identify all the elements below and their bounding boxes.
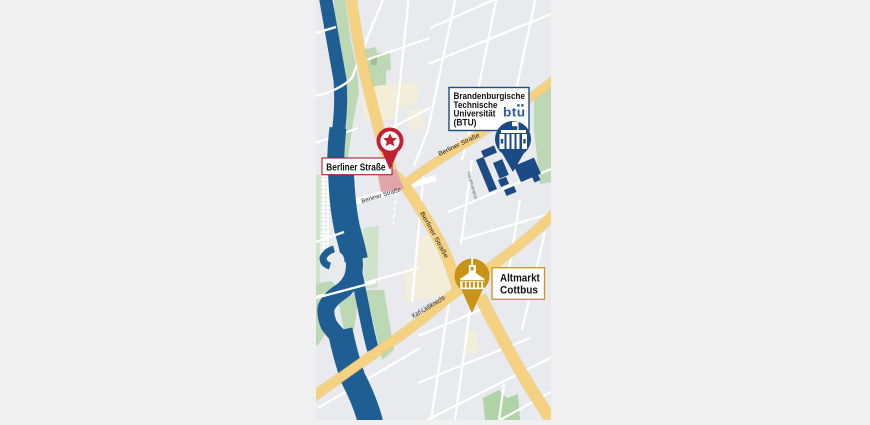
svg-text:Berliner Straße: Berliner Straße bbox=[326, 162, 386, 173]
svg-text:btu: btu bbox=[503, 105, 526, 120]
svg-text:Cottbus: Cottbus bbox=[500, 284, 538, 296]
svg-text:(BTU): (BTU) bbox=[454, 117, 477, 127]
svg-text:Altmarkt: Altmarkt bbox=[500, 272, 540, 284]
